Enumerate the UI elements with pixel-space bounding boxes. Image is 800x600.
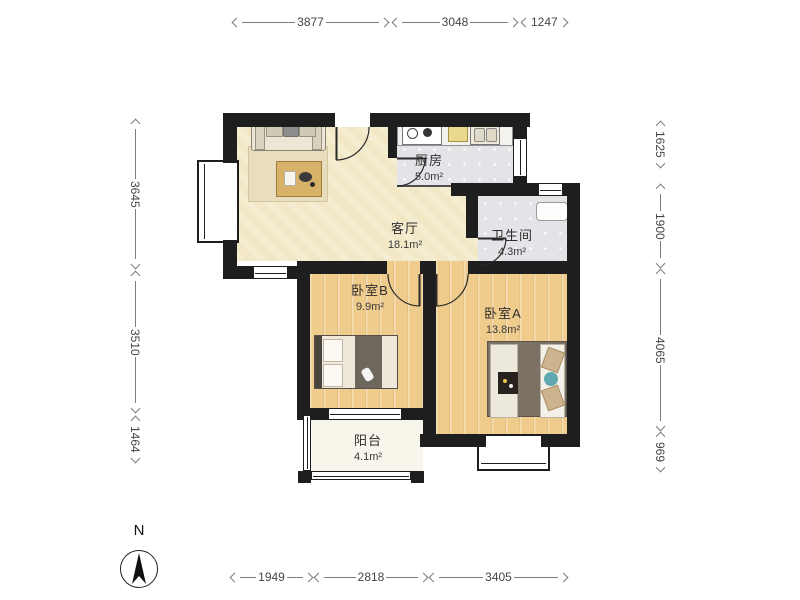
window-pane-line — [307, 417, 308, 469]
nightstand — [498, 372, 518, 394]
dim-left-3510: 3510 — [128, 272, 142, 412]
dim-label: 1900 — [653, 213, 667, 240]
kitchen-window — [513, 138, 527, 177]
arrow-up-icon — [655, 432, 665, 442]
balcony-side-window — [303, 415, 311, 471]
dim-right-1900: 1900 — [653, 185, 667, 267]
wall-nub — [477, 434, 486, 447]
balcony-front-window — [311, 471, 411, 480]
balcony-corner-post — [411, 471, 424, 483]
room-name: 客厅 — [370, 218, 440, 237]
wall — [223, 113, 335, 127]
compass-north-label: N — [120, 522, 158, 539]
bed-pillow — [323, 364, 343, 387]
arrow-down-icon — [655, 158, 665, 168]
arrow-up-icon — [655, 269, 665, 279]
arrow-right-icon — [419, 572, 429, 582]
dim-line — [135, 129, 136, 179]
wall — [297, 261, 387, 274]
arrow-left-icon — [521, 17, 531, 27]
room-area: 13.8m² — [468, 324, 538, 336]
decor-dot — [509, 384, 513, 388]
dim-label: 1949 — [258, 570, 285, 584]
table-papers — [284, 171, 296, 186]
dim-line — [660, 241, 661, 258]
window-pane-line — [204, 164, 205, 239]
stove-burner — [423, 128, 432, 137]
table-cup — [310, 182, 315, 187]
room-area: 5.0m² — [399, 171, 459, 183]
room-area: 18.1m² — [370, 239, 440, 251]
bedroom-a-label: 卧室A 13.8m² — [468, 303, 538, 336]
bedroom-a-door — [436, 274, 468, 306]
living-room-label: 客厅 18.1m² — [370, 218, 440, 251]
bathroom-window — [538, 183, 563, 196]
dim-label: 3510 — [128, 329, 142, 356]
stove — [402, 124, 442, 145]
stove-burner — [407, 128, 418, 139]
dim-line — [135, 209, 136, 259]
wall — [423, 261, 436, 447]
bed-headboard — [315, 336, 322, 388]
kitchen-appliance — [448, 126, 468, 142]
dim-line — [660, 365, 661, 421]
dim-line — [240, 577, 256, 578]
room-name: 厨房 — [399, 150, 459, 169]
dim-line — [402, 22, 440, 23]
dim-line — [439, 577, 483, 578]
dim-label: 3405 — [485, 570, 512, 584]
arrow-down-icon — [130, 404, 140, 414]
arrow-down-icon — [655, 259, 665, 269]
bed-round-pillow — [544, 372, 558, 386]
arrow-left-icon — [392, 17, 402, 27]
room-name: 卧室A — [468, 303, 538, 322]
dim-label: 3877 — [297, 15, 324, 29]
arrow-right-icon — [559, 572, 569, 582]
dim-label: 969 — [653, 442, 667, 462]
bed-pillow — [323, 339, 343, 362]
dim-top-1247: 1247 — [522, 15, 567, 29]
sink-basin — [486, 128, 497, 142]
dim-line — [386, 577, 418, 578]
arrow-right-icon — [304, 572, 314, 582]
balcony-label: 阳台 4.1m² — [333, 430, 403, 463]
arrow-down-icon — [130, 260, 140, 270]
dim-label: 3048 — [442, 15, 469, 29]
dim-line — [326, 22, 379, 23]
arrow-left-icon — [232, 17, 242, 27]
wall-nub — [541, 434, 550, 447]
arrow-up-icon — [130, 416, 140, 426]
wall — [388, 113, 397, 158]
living-room-south-window — [253, 266, 288, 279]
coffee-table — [276, 161, 322, 197]
room-name: 阳台 — [333, 430, 403, 449]
dim-line — [514, 577, 558, 578]
bedroom-b-label: 卧室B 9.9m² — [335, 280, 405, 313]
dim-label: 1247 — [531, 15, 558, 29]
dim-label: 2818 — [358, 570, 385, 584]
balcony-corner-post — [298, 471, 311, 483]
arrow-down-icon — [655, 422, 665, 432]
floor-plan-canvas: 3877 3048 1247 1949 2818 3405 — [0, 0, 800, 600]
dim-line — [287, 577, 303, 578]
lamp — [503, 379, 507, 383]
arrow-right-icon — [380, 17, 390, 27]
room-area: 4.1m² — [333, 451, 403, 463]
dim-top-3048: 3048 — [393, 15, 517, 29]
dim-bottom-1949: 1949 — [231, 570, 312, 584]
window-pane-line — [255, 273, 286, 274]
dim-bottom-2818: 2818 — [315, 570, 427, 584]
window-pane-line — [520, 140, 521, 175]
dim-bottom-3405: 3405 — [430, 570, 567, 584]
north-arrow-icon — [120, 550, 158, 588]
room-area: 4.3m² — [477, 246, 547, 258]
bedroom-b-bed — [314, 335, 398, 389]
window-pane-line — [481, 463, 546, 464]
bathroom-label: 卫生间 4.3m² — [477, 225, 547, 258]
dim-right-969: 969 — [653, 433, 667, 473]
balcony-sliding-door — [328, 408, 402, 420]
living-room-bay-window — [197, 160, 239, 243]
window-pane-line — [313, 476, 409, 477]
dim-line — [324, 577, 356, 578]
dim-left-1464: 1464 — [128, 417, 142, 468]
arrow-up-icon — [655, 184, 665, 194]
dim-line — [135, 281, 136, 327]
dim-line — [242, 22, 295, 23]
room-name: 卧室B — [335, 280, 405, 299]
kitchen-label: 厨房 5.0m² — [399, 150, 459, 183]
table-teapot — [299, 172, 312, 182]
dim-label: 4065 — [653, 337, 667, 364]
dim-line — [470, 22, 508, 23]
arrow-up-icon — [130, 271, 140, 281]
wall — [297, 408, 328, 420]
wall — [223, 113, 237, 163]
dim-label: 3645 — [128, 181, 142, 208]
dim-label: 1464 — [128, 426, 142, 453]
dim-right-4065: 4065 — [653, 270, 667, 430]
dim-line — [660, 194, 661, 211]
wall — [513, 113, 527, 138]
arrow-left-icon — [314, 572, 324, 582]
dim-line — [660, 279, 661, 335]
arrow-down-icon — [655, 463, 665, 473]
dim-left-3645: 3645 — [128, 120, 142, 268]
bedroom-a-bed — [487, 341, 567, 417]
bedroom-a-bay-window — [477, 434, 550, 471]
window-pane-line — [540, 190, 561, 191]
arrow-up-icon — [655, 121, 665, 131]
sink-basin — [474, 128, 485, 142]
arrow-right-icon — [558, 17, 568, 27]
dim-top-3877: 3877 — [233, 15, 388, 29]
kitchen-sink — [470, 124, 500, 145]
wall — [223, 240, 237, 279]
wall — [297, 266, 310, 408]
wall — [567, 183, 580, 447]
dim-right-1625: 1625 — [653, 122, 667, 180]
room-name: 卫生间 — [477, 225, 547, 244]
entrance-door — [336, 127, 369, 160]
arrow-down-icon — [130, 453, 140, 463]
dim-label: 1625 — [653, 131, 667, 158]
bathroom-basin — [536, 202, 568, 221]
wall — [513, 177, 527, 196]
arrow-right-icon — [509, 17, 519, 27]
window-pane-line — [330, 414, 400, 415]
arrow-up-icon — [130, 119, 140, 129]
room-area: 9.9m² — [335, 301, 405, 313]
arrow-left-icon — [230, 572, 240, 582]
arrow-left-icon — [429, 572, 439, 582]
dim-line — [135, 357, 136, 403]
